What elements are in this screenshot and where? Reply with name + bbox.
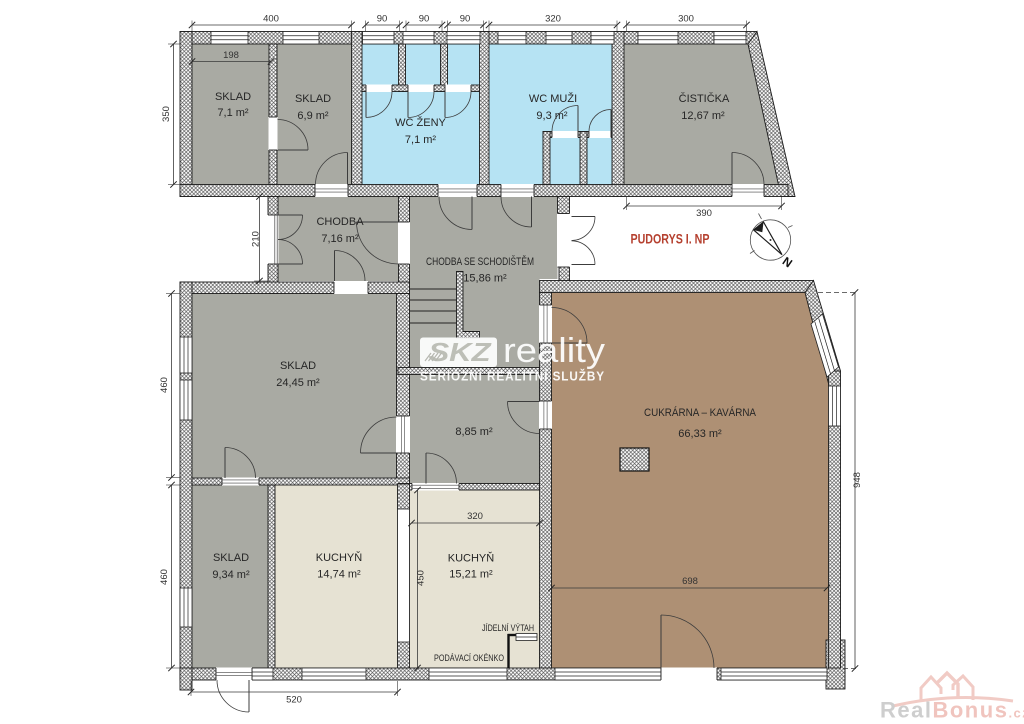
svg-text:CHODBA: CHODBA (316, 216, 364, 228)
svg-text:90: 90 (377, 14, 388, 25)
svg-text:948: 948 (852, 472, 863, 488)
svg-text:8,85 m²: 8,85 m² (455, 426, 493, 438)
svg-text:300: 300 (678, 14, 694, 25)
svg-text:CHODBA SE SCHODIŠTĚM: CHODBA SE SCHODIŠTĚM (426, 255, 534, 268)
svg-text:460: 460 (159, 569, 170, 585)
svg-text:KUCHYŇ: KUCHYŇ (448, 552, 495, 565)
svg-text:14,74 m²: 14,74 m² (317, 569, 361, 581)
svg-text:SKLAD: SKLAD (295, 93, 331, 105)
svg-text:7,1 m²: 7,1 m² (405, 134, 437, 146)
svg-text:SKZ: SKZ (429, 337, 492, 367)
svg-text:390: 390 (696, 208, 712, 219)
svg-text:24,45 m²: 24,45 m² (276, 377, 320, 389)
svg-text:6,9 m²: 6,9 m² (297, 110, 329, 122)
svg-text:400: 400 (263, 14, 279, 25)
svg-text:320: 320 (467, 511, 483, 522)
svg-text:SERIÓZNÍ REALITNÍ SLUŽBY: SERIÓZNÍ REALITNÍ SLUŽBY (420, 369, 605, 384)
svg-text:SKLAD: SKLAD (215, 91, 251, 103)
svg-text:450: 450 (416, 570, 427, 586)
svg-text:90: 90 (419, 14, 430, 25)
svg-text:ČISTIČKA: ČISTIČKA (679, 92, 730, 105)
svg-text:15,86 m²: 15,86 m² (463, 273, 507, 285)
svg-text:7,16 m²: 7,16 m² (321, 233, 359, 245)
svg-text:90: 90 (460, 14, 471, 25)
svg-text:9,34 m²: 9,34 m² (212, 569, 250, 581)
svg-text:JÍDELNÍ VÝTAH: JÍDELNÍ VÝTAH (482, 623, 534, 634)
svg-text:460: 460 (159, 377, 170, 393)
svg-text:350: 350 (161, 106, 172, 122)
svg-text:698: 698 (682, 576, 698, 587)
svg-text:SKLAD: SKLAD (213, 552, 249, 564)
svg-text:WC MUŽI: WC MUŽI (529, 92, 577, 105)
svg-text:CUKRÁRNA – KAVÁRNA: CUKRÁRNA – KAVÁRNA (644, 406, 757, 419)
svg-text:PODÁVACÍ OKÉNKO: PODÁVACÍ OKÉNKO (434, 653, 504, 664)
svg-text:15,21 m²: 15,21 m² (449, 569, 493, 581)
svg-text:PUDORYS I. NP: PUDORYS I. NP (631, 231, 710, 247)
svg-text:320: 320 (545, 14, 561, 25)
svg-text:9,3 m²: 9,3 m² (536, 110, 568, 122)
svg-text:520: 520 (286, 695, 302, 706)
svg-text:reality: reality (503, 332, 605, 370)
svg-text:SKLAD: SKLAD (280, 360, 316, 372)
svg-text:RealBonus.cz: RealBonus.cz (880, 698, 1024, 723)
svg-text:WC ŽENY: WC ŽENY (395, 116, 446, 129)
svg-text:66,33 m²: 66,33 m² (678, 428, 722, 440)
svg-text:KUCHYŇ: KUCHYŇ (316, 551, 363, 564)
svg-text:7,1 m²: 7,1 m² (217, 107, 249, 119)
svg-text:198: 198 (223, 50, 239, 61)
svg-text:210: 210 (251, 231, 262, 247)
svg-text:12,67 m²: 12,67 m² (681, 110, 725, 122)
